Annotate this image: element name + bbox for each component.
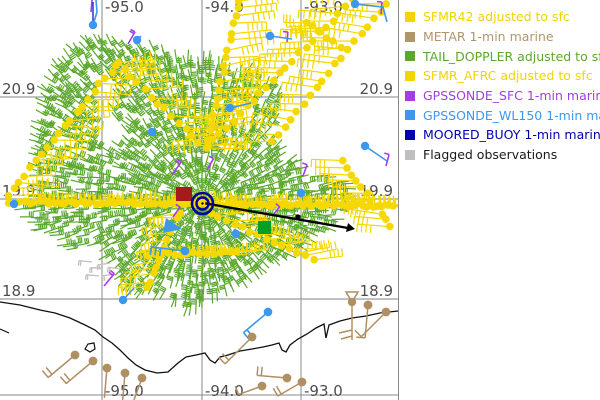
lat-label-right: 20.9 (360, 80, 393, 98)
sfmr42-color-swatch (405, 12, 415, 22)
lon-label-bottom: -94.0 (205, 382, 244, 400)
green-position-marker (258, 221, 271, 234)
red-center-fix-marker (176, 187, 192, 201)
observation-viewer: -95.0-95.0-94.0-94.0-93.0-93.020.920.919… (0, 0, 600, 400)
legend-item-metar: METAR 1-min marine (399, 27, 600, 47)
legend-label: SFMR42 adjusted to sfc (423, 9, 570, 24)
flagged-layer (79, 261, 122, 281)
lat-label-right: 18.9 (360, 282, 393, 300)
legend-item-gpssonde-sfc: GPSSONDE_SFC 1-min marine (399, 86, 600, 106)
legend-item-sfmr42: SFMR42 adjusted to sfc (399, 7, 600, 27)
wl150-dot (264, 308, 272, 316)
map-panel[interactable]: -95.0-95.0-94.0-94.0-93.0-93.020.920.919… (0, 0, 398, 400)
legend-label: MOORED_BUOY 1-min marine (423, 127, 600, 142)
legend-label: GPSSONDE_SFC 1-min marine (423, 88, 600, 103)
wl150-dot (133, 36, 141, 44)
lon-label-bottom: -93.0 (304, 382, 343, 400)
legend-label: GPSSONDE_WL150 1-min marine (423, 108, 600, 123)
wl150-dot (232, 230, 240, 238)
wl150-dot (351, 0, 359, 8)
wl150-dot (361, 142, 369, 150)
gpssonde-sfc-color-swatch (405, 91, 415, 101)
wl150-dot (297, 189, 305, 197)
wl150-dot (148, 128, 156, 136)
moored-buoy-color-swatch (405, 130, 415, 140)
lon-label-top: -95.0 (105, 0, 144, 16)
coastline-layer (0, 302, 398, 373)
track-point (295, 214, 300, 219)
wl150-dot (10, 200, 18, 208)
legend-label: Flagged observations (423, 147, 557, 162)
wl150-dot (181, 247, 189, 255)
wl150-dot (266, 32, 274, 40)
lat-label-left: 18.9 (2, 282, 35, 300)
flagged-color-swatch (405, 150, 415, 160)
lat-label-left: 20.9 (2, 80, 35, 98)
legend-label: TAIL_DOPPLER adjusted to sfc (423, 49, 600, 64)
map-canvas[interactable]: -95.0-95.0-94.0-94.0-93.0-93.020.920.919… (0, 0, 398, 400)
legend-item-moored-buoy: MOORED_BUOY 1-min marine (399, 125, 600, 145)
wl150-dot (119, 296, 127, 304)
legend-label: METAR 1-min marine (423, 29, 554, 44)
legend-item-tail-doppler: TAIL_DOPPLER adjusted to sfc (399, 46, 600, 66)
metar-color-swatch (405, 32, 415, 42)
small-island (85, 343, 95, 352)
legend-panel: SFMR42 adjusted to sfc METAR 1-min marin… (398, 0, 600, 400)
sfmr-afrc-color-swatch (405, 71, 415, 81)
legend-item-gpssonde-wl150: GPSSONDE_WL150 1-min marine (399, 105, 600, 125)
wl150-dot (89, 21, 97, 29)
wl150-dot (226, 104, 234, 112)
legend-label: SFMR_AFRC adjusted to sfc (423, 68, 593, 83)
tail-doppler-color-swatch (405, 51, 415, 61)
legend-item-sfmr-afrc: SFMR_AFRC adjusted to sfc (399, 66, 600, 86)
tail-doppler-layer (14, 34, 364, 316)
gpssonde-wl150-color-swatch (405, 110, 415, 120)
legend-item-flagged: Flagged observations (399, 145, 600, 165)
